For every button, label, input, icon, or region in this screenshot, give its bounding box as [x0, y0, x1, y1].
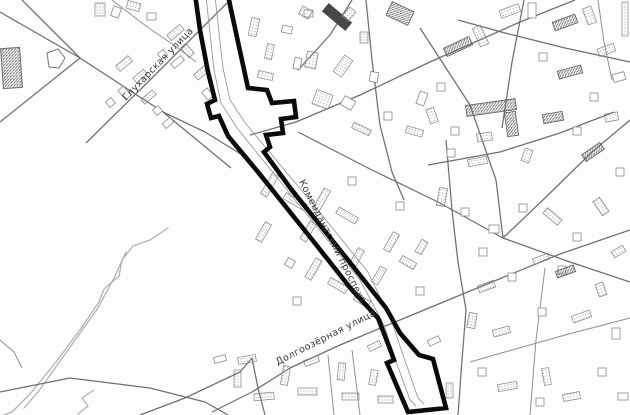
building	[622, 2, 628, 36]
building	[618, 393, 628, 400]
building	[437, 83, 445, 91]
building	[369, 71, 379, 82]
building	[573, 233, 581, 241]
building	[499, 4, 521, 18]
buildings-layer	[95, 0, 628, 406]
building	[477, 280, 495, 292]
building	[396, 202, 404, 210]
map-canvas: Глухарская улицаКомендантский проспектДо…	[0, 0, 630, 415]
building	[604, 112, 618, 122]
building	[378, 396, 393, 403]
building	[405, 126, 423, 137]
building	[360, 32, 368, 43]
road-line-minor	[0, 340, 22, 368]
building	[461, 208, 469, 216]
building	[383, 232, 399, 253]
building	[582, 142, 605, 161]
building	[312, 90, 333, 110]
building	[333, 55, 353, 77]
building	[552, 14, 578, 31]
building	[539, 53, 547, 61]
building	[384, 112, 392, 120]
building	[303, 356, 319, 367]
building	[255, 222, 271, 243]
street-labels-layer: Глухарская улицаКомендантский проспектДо…	[121, 26, 378, 368]
building	[508, 273, 516, 281]
road-line-minor	[352, 350, 360, 415]
building	[593, 197, 609, 216]
building	[447, 149, 455, 157]
building	[367, 341, 381, 352]
building	[337, 363, 345, 381]
building	[467, 312, 477, 328]
building	[498, 381, 518, 391]
building	[542, 111, 563, 123]
building	[416, 91, 428, 106]
building	[153, 106, 163, 116]
building	[538, 308, 546, 316]
building	[106, 98, 116, 108]
building	[542, 368, 552, 386]
building	[582, 6, 596, 25]
building	[611, 245, 626, 258]
building	[342, 393, 359, 400]
building	[369, 370, 378, 386]
building	[543, 208, 562, 226]
building	[532, 253, 549, 264]
building	[451, 127, 459, 135]
building	[285, 258, 296, 269]
road-line	[503, 120, 630, 238]
building	[399, 255, 416, 269]
building	[427, 336, 440, 347]
building	[557, 65, 582, 79]
street-label-dolgoozernaya: Долгоозёрная улица	[274, 308, 378, 368]
road-line-minor	[328, 355, 334, 415]
building	[436, 187, 447, 206]
building	[573, 127, 581, 135]
landmarks-layer	[1, 47, 65, 88]
stream-line	[78, 390, 94, 414]
building	[348, 177, 356, 185]
building	[352, 122, 372, 135]
building	[446, 383, 453, 398]
building	[426, 107, 439, 124]
building	[126, 0, 141, 11]
building	[590, 93, 598, 101]
building	[305, 258, 322, 281]
building	[257, 71, 273, 81]
building	[116, 56, 133, 72]
building	[521, 148, 533, 163]
street-label-glukharskaya: Глухарская улица	[121, 26, 196, 103]
building	[478, 368, 486, 376]
building	[536, 398, 544, 406]
building	[371, 266, 386, 285]
building	[598, 368, 606, 376]
building	[477, 132, 493, 142]
building	[336, 207, 359, 224]
building	[563, 392, 581, 402]
building	[305, 51, 319, 69]
road-line	[503, 238, 630, 282]
building	[616, 168, 624, 176]
building	[504, 111, 518, 136]
building	[612, 72, 626, 83]
building	[265, 43, 275, 59]
building	[595, 282, 607, 297]
building	[147, 13, 156, 20]
building	[298, 388, 317, 395]
building	[489, 225, 499, 233]
pentagon-building	[47, 49, 65, 68]
city-map-image: Глухарская улицаКомендантский проспектДо…	[0, 0, 630, 415]
building	[280, 366, 290, 386]
building	[415, 239, 428, 255]
building	[416, 287, 424, 295]
hatched-basin	[1, 47, 23, 88]
building	[443, 37, 472, 57]
road-line-minor	[598, 0, 612, 80]
road-line-minor	[470, 318, 630, 362]
building	[213, 355, 226, 364]
road-line	[212, 230, 630, 412]
building	[293, 297, 301, 305]
building	[386, 2, 414, 26]
building	[528, 3, 536, 18]
road-line	[0, 12, 231, 168]
road-line	[446, 140, 466, 415]
building	[479, 248, 487, 256]
building	[111, 6, 122, 18]
building	[492, 326, 510, 337]
building	[571, 310, 591, 323]
road-line	[252, 358, 265, 415]
building	[254, 392, 275, 401]
building	[612, 328, 620, 339]
building	[519, 204, 527, 212]
building	[248, 17, 260, 36]
building	[95, 3, 105, 16]
building	[281, 25, 292, 34]
building	[234, 370, 241, 387]
road-line	[163, 112, 247, 158]
